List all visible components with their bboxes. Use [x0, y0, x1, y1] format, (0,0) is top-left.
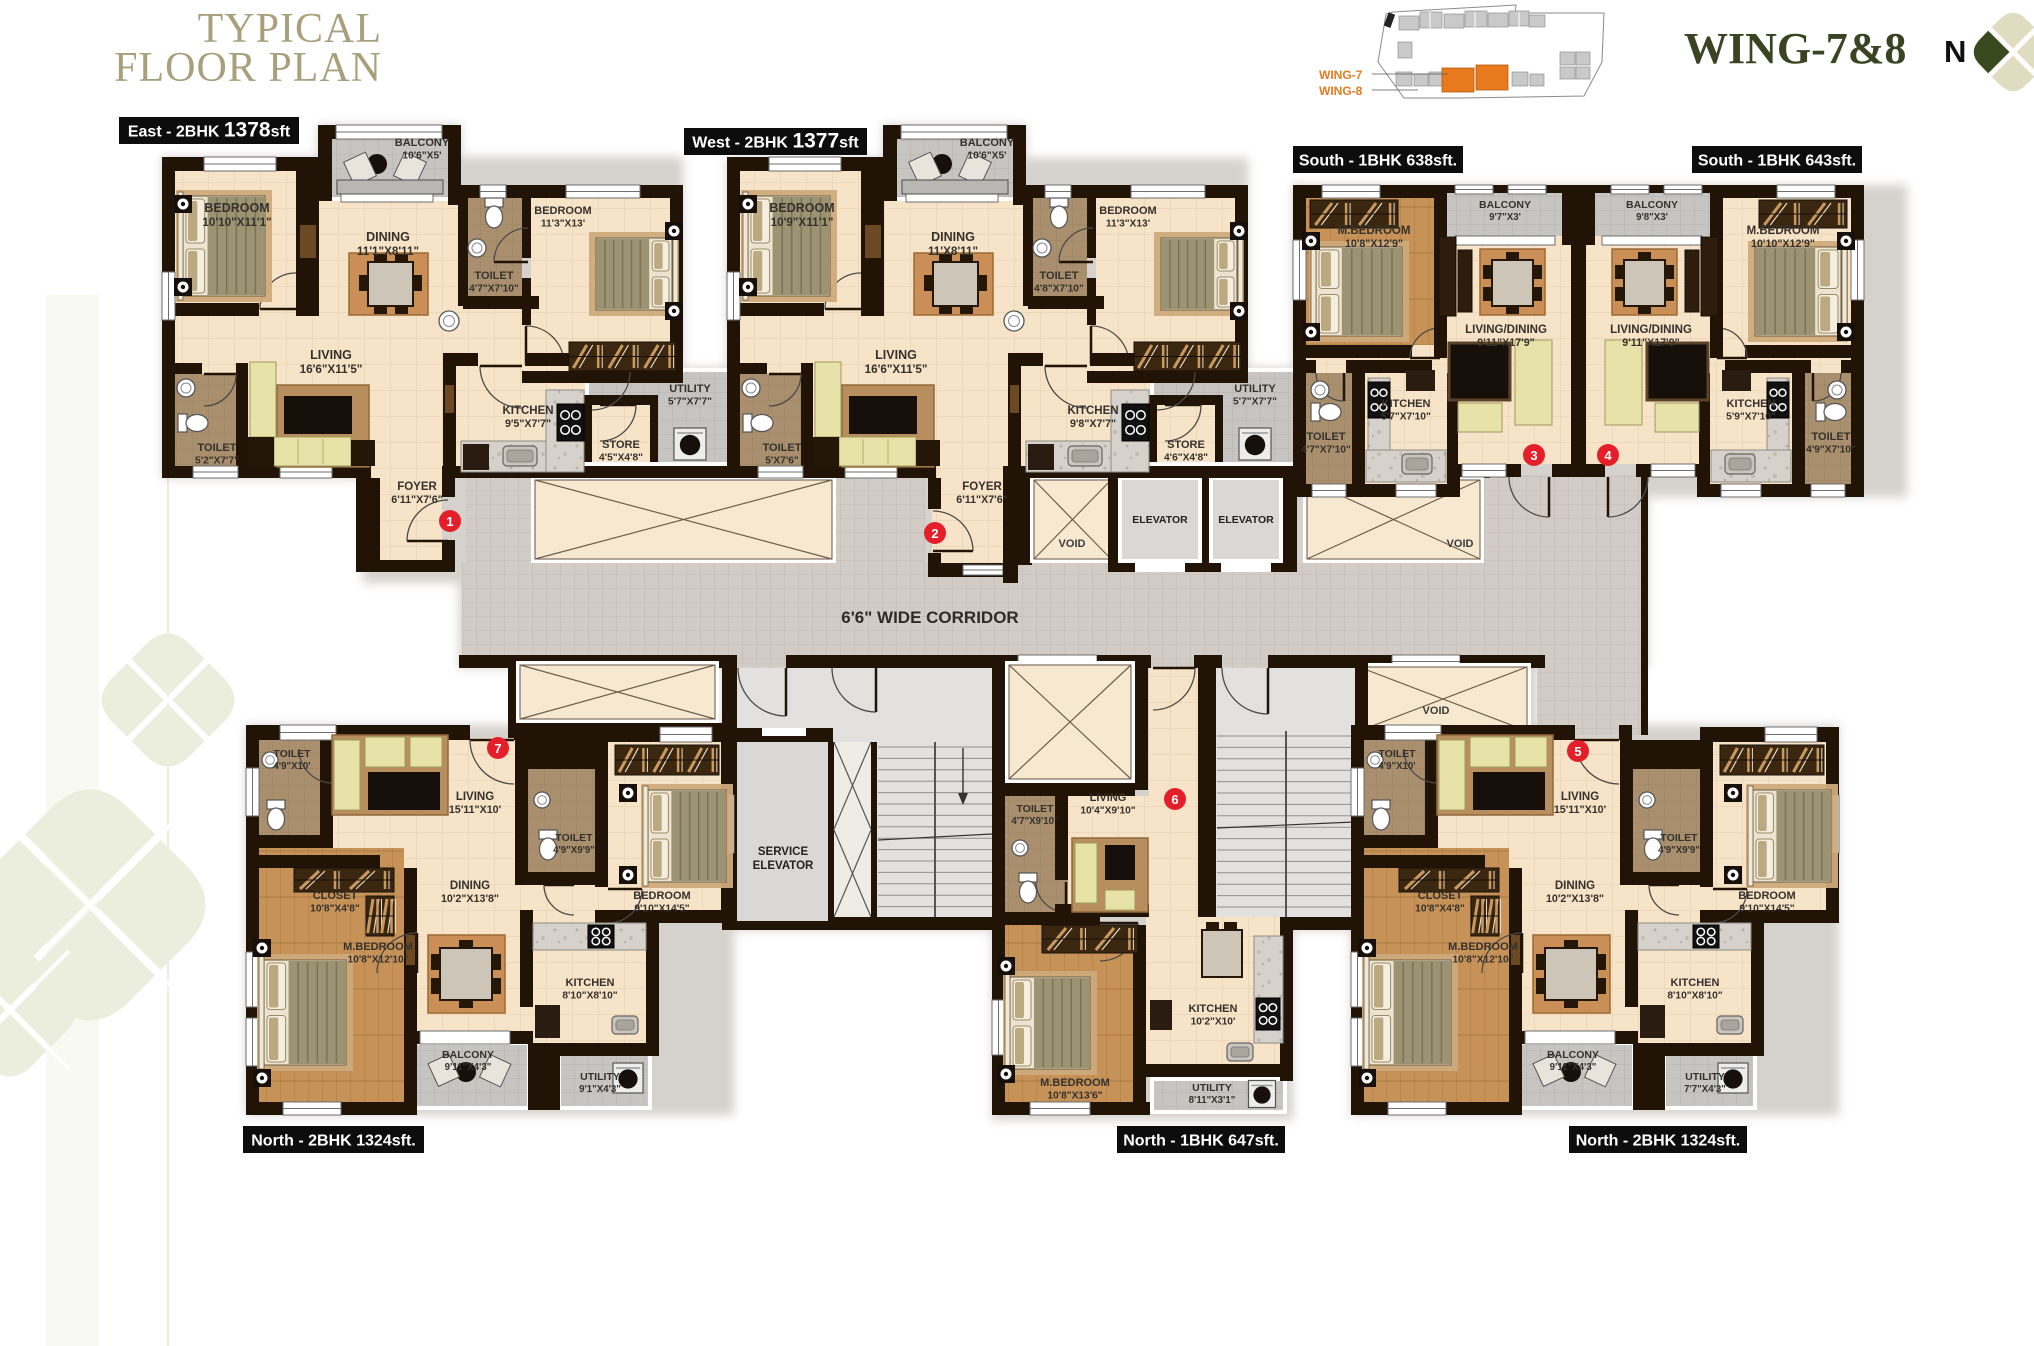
svg-text:LIVING: LIVING	[456, 791, 494, 803]
svg-text:WING-7: WING-7	[1319, 68, 1363, 82]
svg-text:BEDROOM: BEDROOM	[1099, 205, 1156, 217]
svg-text:10'8"X4'8": 10'8"X4'8"	[1415, 904, 1465, 915]
svg-text:10'8"X12'10": 10'8"X12'10"	[1453, 955, 1514, 966]
svg-text:North - 2BHK 1324sft.: North - 2BHK 1324sft.	[251, 1133, 415, 1150]
svg-text:11'3"X13': 11'3"X13'	[1106, 219, 1150, 230]
svg-text:5'X7'6": 5'X7'6"	[765, 456, 799, 467]
svg-text:16'6"X11'5": 16'6"X11'5"	[865, 363, 928, 376]
svg-text:CLOSET: CLOSET	[313, 890, 358, 902]
svg-text:9'7"X3': 9'7"X3'	[1489, 212, 1521, 223]
svg-text:4'5"X4'8": 4'5"X4'8"	[599, 453, 643, 464]
svg-text:10'6"X5': 10'6"X5'	[402, 151, 441, 162]
svg-text:BEDROOM: BEDROOM	[204, 201, 269, 215]
svg-text:BALCONY: BALCONY	[1479, 199, 1531, 211]
svg-text:TOILET: TOILET	[1378, 748, 1416, 760]
svg-text:10'2"X10': 10'2"X10'	[1191, 1017, 1236, 1028]
svg-text:9'5"X7'7": 9'5"X7'7"	[505, 418, 551, 430]
svg-text:4'9"X9'9": 4'9"X9'9"	[553, 845, 595, 856]
svg-text:KITCHEN: KITCHEN	[566, 977, 615, 989]
svg-text:TOILET: TOILET	[763, 442, 802, 454]
svg-text:WING-7&8: WING-7&8	[1684, 24, 1906, 73]
svg-text:9'11"X17'9": 9'11"X17'9"	[1477, 337, 1534, 349]
svg-text:5'2"X7'7": 5'2"X7'7"	[195, 456, 239, 467]
svg-text:10'8"X12'10": 10'8"X12'10"	[348, 955, 409, 966]
svg-text:7'7"X4'3": 7'7"X4'3"	[1684, 1084, 1726, 1095]
svg-text:10'2"X13'8": 10'2"X13'8"	[1546, 893, 1604, 905]
svg-text:LIVING: LIVING	[1561, 791, 1599, 803]
svg-text:LIVING: LIVING	[310, 348, 352, 362]
svg-text:BALCONY: BALCONY	[1626, 199, 1678, 211]
svg-text:KITCHEN: KITCHEN	[502, 405, 553, 417]
svg-text:9'10"X14'5": 9'10"X14'5"	[1739, 904, 1794, 915]
svg-text:M.BEDROOM: M.BEDROOM	[1040, 1077, 1110, 1089]
svg-text:11'1"X8'11": 11'1"X8'11"	[357, 245, 419, 258]
svg-text:11'3"X13': 11'3"X13'	[541, 219, 585, 230]
svg-text:North - 1BHK 647sft.: North - 1BHK 647sft.	[1123, 1133, 1279, 1150]
svg-text:VOID: VOID	[1447, 538, 1474, 550]
svg-text:FLOOR PLAN: FLOOR PLAN	[114, 45, 382, 91]
svg-text:TOILET: TOILET	[475, 270, 514, 282]
svg-text:VOID: VOID	[1059, 538, 1086, 550]
svg-text:4'7"X7'10": 4'7"X7'10"	[469, 284, 519, 295]
svg-text:TOILET: TOILET	[1040, 270, 1079, 282]
svg-text:9'8"X3': 9'8"X3'	[1636, 212, 1668, 223]
svg-text:N: N	[1944, 34, 1966, 69]
svg-text:4'7"X9'10": 4'7"X9'10"	[1011, 816, 1058, 827]
svg-text:STORE: STORE	[1167, 439, 1205, 451]
svg-text:BALCONY: BALCONY	[395, 137, 450, 149]
svg-text:KITCHEN: KITCHEN	[1671, 977, 1720, 989]
svg-text:4'9"X9'9": 4'9"X9'9"	[1658, 845, 1700, 856]
svg-text:8'10"X8'10": 8'10"X8'10"	[562, 991, 617, 1002]
svg-text:15'11"X10': 15'11"X10'	[1554, 804, 1606, 816]
svg-text:South - 1BHK 638sft.: South - 1BHK 638sft.	[1299, 153, 1457, 170]
svg-text:5'7"X7'7": 5'7"X7'7"	[668, 397, 712, 408]
svg-text:FOYER: FOYER	[397, 481, 437, 493]
svg-text:2: 2	[931, 526, 938, 541]
svg-text:LIVING: LIVING	[1090, 792, 1127, 804]
svg-text:TOILET: TOILET	[273, 748, 311, 760]
svg-text:North - 2BHK 1324sft.: North - 2BHK 1324sft.	[1576, 1133, 1740, 1150]
svg-text:KITCHEN: KITCHEN	[1727, 398, 1776, 410]
svg-text:VOID: VOID	[1423, 705, 1450, 717]
svg-text:10'2"X13'8": 10'2"X13'8"	[441, 893, 499, 905]
svg-text:9'11"X17'9": 9'11"X17'9"	[1622, 337, 1679, 349]
svg-text:ELEVATOR: ELEVATOR	[1218, 514, 1274, 526]
svg-text:4'6"X4'8": 4'6"X4'8"	[1164, 453, 1208, 464]
svg-text:9'1"X4'3": 9'1"X4'3"	[579, 1084, 621, 1095]
svg-text:15'11"X10': 15'11"X10'	[449, 804, 501, 816]
svg-text:7: 7	[494, 741, 501, 756]
svg-text:BEDROOM: BEDROOM	[633, 890, 690, 902]
svg-text:UTILITY: UTILITY	[1685, 1071, 1725, 1083]
svg-text:10'9"X11'1": 10'9"X11'1"	[771, 216, 834, 229]
svg-text:4'9"X7'10": 4'9"X7'10"	[1806, 445, 1856, 456]
svg-text:5'7"X7'10": 5'7"X7'10"	[1381, 412, 1431, 423]
svg-text:10'8"X13'6": 10'8"X13'6"	[1047, 1091, 1102, 1102]
svg-text:DINING: DINING	[366, 230, 410, 244]
svg-text:LIVING/DINING: LIVING/DINING	[1610, 324, 1692, 336]
svg-text:M.BEDROOM: M.BEDROOM	[1338, 225, 1411, 237]
svg-text:ELEVATOR: ELEVATOR	[753, 860, 814, 872]
svg-text:4'7"X7'10": 4'7"X7'10"	[1301, 445, 1351, 456]
svg-text:UTILITY: UTILITY	[669, 383, 711, 395]
svg-text:UTILITY: UTILITY	[1192, 1082, 1232, 1094]
svg-text:3: 3	[1530, 448, 1537, 463]
svg-text:9'11"X4'3": 9'11"X4'3"	[1550, 1062, 1597, 1073]
svg-text:5: 5	[1574, 744, 1581, 759]
svg-text:5'9"X7'10": 5'9"X7'10"	[1726, 412, 1776, 423]
svg-text:LIVING/DINING: LIVING/DINING	[1465, 324, 1547, 336]
svg-text:DINING: DINING	[450, 880, 490, 892]
svg-text:6: 6	[1171, 792, 1178, 807]
svg-text:BALCONY: BALCONY	[442, 1049, 494, 1061]
svg-text:BALCONY: BALCONY	[1547, 1049, 1599, 1061]
svg-text:4'8"X7'10": 4'8"X7'10"	[1034, 284, 1084, 295]
svg-text:KITCHEN: KITCHEN	[1067, 405, 1118, 417]
svg-text:WING-8: WING-8	[1319, 84, 1363, 98]
svg-text:10'8"X12'9": 10'8"X12'9"	[1345, 238, 1403, 250]
svg-text:8'10"X8'10": 8'10"X8'10"	[1667, 991, 1722, 1002]
svg-text:BALCONY: BALCONY	[960, 137, 1015, 149]
svg-text:KITCHEN: KITCHEN	[1382, 398, 1431, 410]
svg-text:ELEVATOR: ELEVATOR	[1132, 514, 1188, 526]
svg-text:TOILET: TOILET	[1812, 431, 1851, 443]
svg-text:9'10"X14'5": 9'10"X14'5"	[634, 904, 689, 915]
svg-text:STORE: STORE	[602, 439, 640, 451]
svg-text:BEDROOM: BEDROOM	[534, 205, 591, 217]
svg-text:CLOSET: CLOSET	[1418, 890, 1463, 902]
svg-text:FOYER: FOYER	[962, 481, 1002, 493]
svg-text:South - 1BHK 643sft.: South - 1BHK 643sft.	[1698, 153, 1856, 170]
svg-text:TOILET: TOILET	[198, 442, 237, 454]
svg-text:4: 4	[1604, 448, 1612, 463]
svg-text:16'6"X11'5": 16'6"X11'5"	[300, 363, 363, 376]
svg-text:M.BEDROOM: M.BEDROOM	[1747, 225, 1820, 237]
svg-text:11'X8'11": 11'X8'11"	[928, 245, 978, 258]
svg-text:10'8"X4'8": 10'8"X4'8"	[310, 904, 360, 915]
svg-text:TOILET: TOILET	[555, 832, 593, 844]
svg-text:4'9"X10': 4'9"X10'	[273, 761, 310, 772]
svg-text:6'11"X7'6": 6'11"X7'6"	[391, 494, 442, 506]
svg-text:BEDROOM: BEDROOM	[1738, 890, 1795, 902]
svg-text:9'8"X7'7": 9'8"X7'7"	[1070, 418, 1116, 430]
svg-text:LIVING: LIVING	[875, 348, 917, 362]
svg-text:DINING: DINING	[1555, 880, 1595, 892]
svg-text:KITCHEN: KITCHEN	[1189, 1003, 1238, 1015]
svg-text:UTILITY: UTILITY	[1234, 383, 1276, 395]
svg-text:BEDROOM: BEDROOM	[769, 201, 834, 215]
svg-text:10'4"X9'10": 10'4"X9'10"	[1080, 806, 1135, 817]
svg-text:10'6"X5': 10'6"X5'	[967, 151, 1006, 162]
svg-text:M.BEDROOM: M.BEDROOM	[1448, 941, 1518, 953]
svg-text:TOILET: TOILET	[1016, 803, 1054, 815]
svg-text:M.BEDROOM: M.BEDROOM	[343, 941, 413, 953]
svg-text:SERVICE: SERVICE	[758, 846, 809, 858]
svg-text:DINING: DINING	[931, 230, 975, 244]
svg-text:TOILET: TOILET	[1307, 431, 1346, 443]
svg-text:10'10"X11'1": 10'10"X11'1"	[202, 216, 271, 229]
svg-text:1: 1	[446, 514, 453, 529]
svg-text:UTILITY: UTILITY	[580, 1071, 620, 1083]
svg-text:6'11"X7'6": 6'11"X7'6"	[956, 494, 1007, 506]
svg-text:6'6" WIDE CORRIDOR: 6'6" WIDE CORRIDOR	[841, 608, 1018, 627]
svg-text:8'11"X3'1": 8'11"X3'1"	[1189, 1095, 1236, 1106]
svg-text:5'7"X7'7": 5'7"X7'7"	[1233, 397, 1277, 408]
svg-text:4'9"X10': 4'9"X10'	[1378, 761, 1415, 772]
svg-text:10'10"X12'9": 10'10"X12'9"	[1751, 238, 1815, 250]
svg-text:9'11"X4'3": 9'11"X4'3"	[445, 1062, 492, 1073]
svg-text:TOILET: TOILET	[1660, 832, 1698, 844]
